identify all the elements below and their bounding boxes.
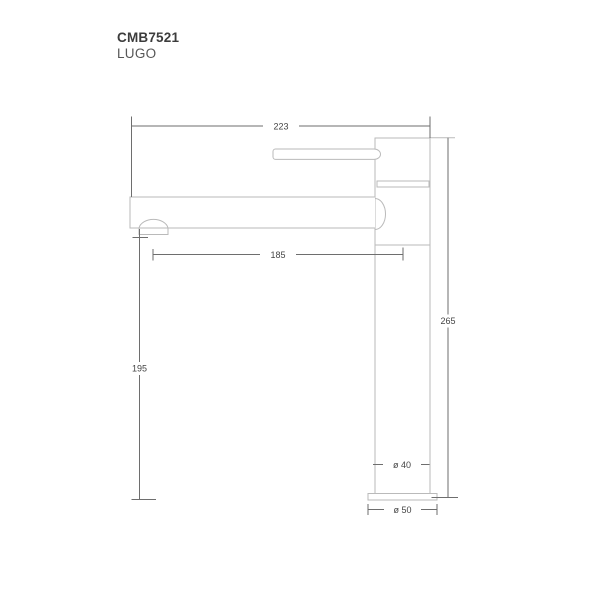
technical-drawing-page: CMB7521 LUGO (0, 0, 600, 600)
base-plate (368, 494, 437, 501)
dim-spout-height-label: 195 (132, 364, 147, 374)
dim-spout-reach-label: 185 (270, 250, 285, 260)
dim-total-height-label: 265 (440, 316, 455, 326)
aerator-ring (139, 228, 168, 235)
faucet-body-column (375, 138, 430, 494)
dim-body-diameter-label: ø 40 (393, 460, 411, 470)
collar-ring (377, 181, 429, 187)
dim-total-projection-label: 223 (273, 121, 288, 131)
faucet-outline (130, 138, 455, 500)
handle-lever (273, 149, 380, 159)
dim-base-diameter-label: ø 50 (393, 505, 411, 515)
spout-outline (130, 197, 375, 228)
faucet-technical-drawing: 223 185 195 265 ø 40 ø 50 (0, 0, 600, 600)
